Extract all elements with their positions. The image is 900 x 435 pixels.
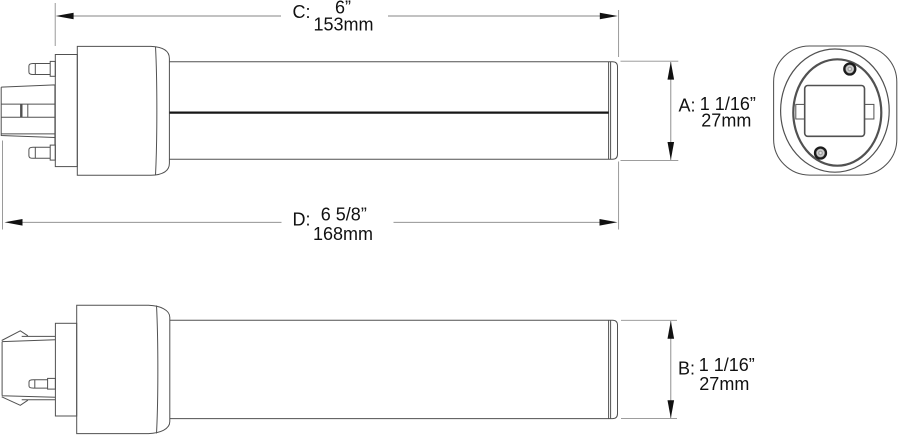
svg-text:153mm: 153mm — [313, 15, 373, 35]
svg-text:D:: D: — [293, 209, 311, 229]
svg-text:A:: A: — [678, 95, 695, 115]
svg-text:B:: B: — [678, 359, 695, 379]
svg-text:168mm: 168mm — [313, 224, 373, 244]
svg-text:1 1/16”: 1 1/16” — [699, 355, 755, 375]
svg-text:27mm: 27mm — [701, 110, 751, 130]
svg-text:C:: C: — [293, 2, 311, 22]
svg-text:6 5/8”: 6 5/8” — [321, 205, 367, 225]
svg-text:27mm: 27mm — [699, 374, 749, 394]
